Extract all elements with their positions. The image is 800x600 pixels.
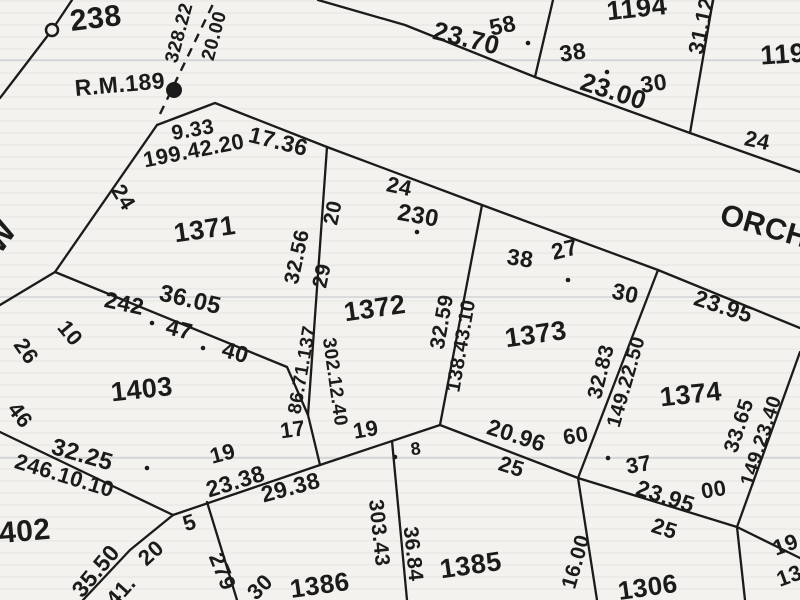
measurement-label: 40 (219, 336, 252, 368)
lot-number-label: 1373 (503, 315, 569, 353)
measurement-label: 8 (409, 438, 422, 459)
reference-mark-dot-icon (166, 82, 182, 98)
lot-number-label: 238 (68, 0, 123, 38)
measurement-label: 328.22 (161, 1, 197, 65)
measurement-label: 20.00 (198, 9, 231, 63)
measurement-label: 303.43 (364, 498, 394, 567)
measurement-label: 46 (3, 397, 38, 432)
measurement-label: 13. (773, 557, 800, 591)
measurement-label: 47 (163, 313, 195, 345)
measurement-label: 38 (505, 243, 535, 272)
parcel-boundary-line (318, 0, 800, 172)
measurement-label: 20 (133, 535, 169, 571)
survey-point-dot-icon (606, 456, 611, 461)
measurement-label: 20.96 (484, 414, 549, 457)
measurement-label: 30 (242, 569, 278, 600)
lot-number-label: 1371 (172, 210, 238, 248)
lot-number-label: 1306 (616, 568, 679, 600)
measurement-label: 17 (278, 415, 307, 443)
measurement-label: 24 (384, 171, 414, 201)
measurement-label: 32.56 (280, 227, 314, 286)
measurement-label: 20 (319, 198, 347, 227)
measurement-label: 10 (53, 315, 89, 351)
survey-point-dot-icon (145, 466, 150, 471)
measurement-label: 36.84 (399, 525, 428, 582)
lot-number-label: 1372 (342, 289, 408, 327)
parcel-boundary-line (308, 415, 320, 465)
benchmark-label: R.M.189 (74, 67, 166, 101)
measurement-label: 24 (742, 125, 772, 155)
measurement-label: 00 (699, 475, 728, 504)
parcel-boundary-line (0, 272, 55, 305)
survey-point-dot-icon (415, 230, 420, 235)
scanned-cadastral-map-page: 2381194119137113721373137414034021385138… (0, 0, 800, 600)
parcel-boundary-line (440, 425, 800, 558)
survey-point-dot-icon (150, 321, 155, 326)
measurement-label: 17.36 (246, 121, 311, 161)
survey-point-dot-icon (566, 278, 571, 283)
measurement-label: 26 (9, 333, 44, 368)
road-name-label: ORCH (716, 198, 800, 255)
measurement-label: 242 (102, 286, 146, 320)
measurement-label: 30 (639, 68, 669, 97)
measurement-label: 38 (558, 37, 588, 66)
measurement-label: 25 (496, 451, 528, 483)
measurement-label: 86.71.137 (284, 324, 320, 415)
parcel-boundary-line (535, 0, 553, 77)
measurement-label: 19 (207, 438, 238, 469)
cadastral-map-svg: 2381194119137113721373137414034021385138… (0, 0, 800, 600)
survey-point-dot-icon (393, 455, 398, 460)
lot-number-label: 1386 (288, 566, 351, 600)
measurement-label: 16.00 (557, 532, 594, 591)
measurement-label: 27 (548, 233, 580, 265)
lot-number-label: 1194 (605, 0, 668, 26)
survey-point-dot-icon (526, 41, 531, 46)
measurement-label: 36.05 (157, 280, 224, 320)
measurement-label: 302.12.40 (318, 336, 351, 427)
partial-letter-label: W (0, 213, 24, 259)
parcel-boundary-line (737, 527, 745, 600)
lot-number-label: 1374 (658, 376, 723, 412)
survey-point-dot-icon (201, 346, 206, 351)
parcel-boundary-line (0, 0, 72, 98)
boundary-corner-circle-marker-icon (46, 24, 58, 36)
lot-number-label: 1385 (438, 546, 504, 584)
measurement-label: 30 (610, 278, 641, 309)
measurement-label: 230 (395, 199, 441, 233)
measurement-label: 5 (180, 509, 200, 537)
measurement-label: 31.12 (683, 0, 719, 56)
measurement-label: 29 (308, 261, 336, 290)
lot-number-label: 119 (759, 38, 800, 71)
measurement-label: 29.38 (258, 467, 323, 508)
measurement-label: 37 (624, 450, 653, 479)
lot-number-label: 402 (0, 513, 52, 550)
measurement-label: 24 (106, 180, 141, 215)
measurement-label: 19 (351, 415, 380, 444)
measurement-label: 25 (649, 513, 681, 545)
measurement-label: 23.95 (691, 285, 756, 328)
measurement-label: 60 (561, 421, 590, 450)
lot-number-label: 1403 (109, 371, 174, 407)
measurement-label: 23.95 (633, 475, 698, 518)
measurement-label: 279 (204, 549, 241, 594)
